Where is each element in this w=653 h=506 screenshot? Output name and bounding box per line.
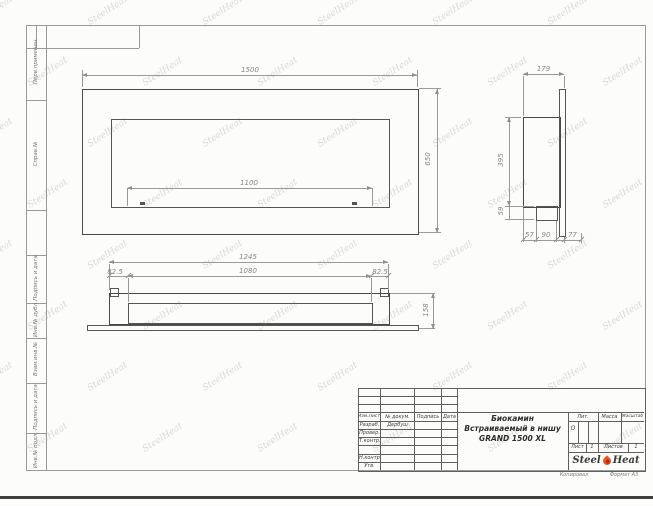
title-block-line — [358, 404, 457, 405]
title-block-line — [358, 445, 457, 446]
flame-icon — [601, 455, 612, 466]
role-utv: Утв. — [359, 463, 380, 469]
title-block-line — [578, 421, 579, 443]
title-block: Изм.Лист № докум. Подпись Дата Разраб. Д… — [0, 0, 653, 506]
brand-heat: Heat — [613, 455, 640, 466]
role-tkontr: Т.контр. — [359, 438, 380, 444]
scan-edge-bar — [0, 496, 653, 499]
brand-logo: Steel Heat — [568, 452, 644, 469]
lit-value: О — [568, 425, 578, 432]
header-massa: Масса — [598, 414, 621, 420]
role-nkontr: Н.контр. — [359, 455, 380, 461]
doc-title-line1: Биокамин — [457, 414, 568, 423]
doc-title-line2: Встраиваемый в нишу — [457, 424, 568, 433]
title-block-line — [588, 421, 589, 443]
header-masshtab: Масштаб — [621, 414, 644, 419]
sheets-total: 1 — [628, 444, 644, 450]
footer-kopiroval: Копировал — [552, 472, 596, 478]
sheet-label: Лист — [569, 444, 586, 450]
doc-title-line3: GRAND 1500 XL — [457, 434, 568, 443]
brand-steel: Steel — [572, 455, 600, 466]
role-razrab-name: Дербуш — [381, 422, 414, 428]
sheets-label: Листов — [599, 444, 628, 450]
title-block-line — [358, 396, 457, 397]
header-podpis: Подпись — [415, 414, 441, 420]
title-block-line — [358, 412, 644, 413]
header-data: Дата — [442, 414, 457, 420]
drawing-sheet: SteelHeatSteelHeatSteelHeatSteelHeatStee… — [0, 0, 653, 506]
role-prover: Провер. — [359, 430, 380, 436]
header-lit: Лит. — [568, 414, 598, 420]
header-izm-list: Изм.Лист — [358, 414, 380, 419]
header-no-dokum: № докум. — [381, 414, 414, 420]
footer-format: Формат А3 — [600, 472, 648, 478]
role-razrab: Разраб. — [359, 422, 380, 428]
sheet-number: 1 — [586, 444, 598, 450]
title-block-line — [568, 421, 644, 422]
